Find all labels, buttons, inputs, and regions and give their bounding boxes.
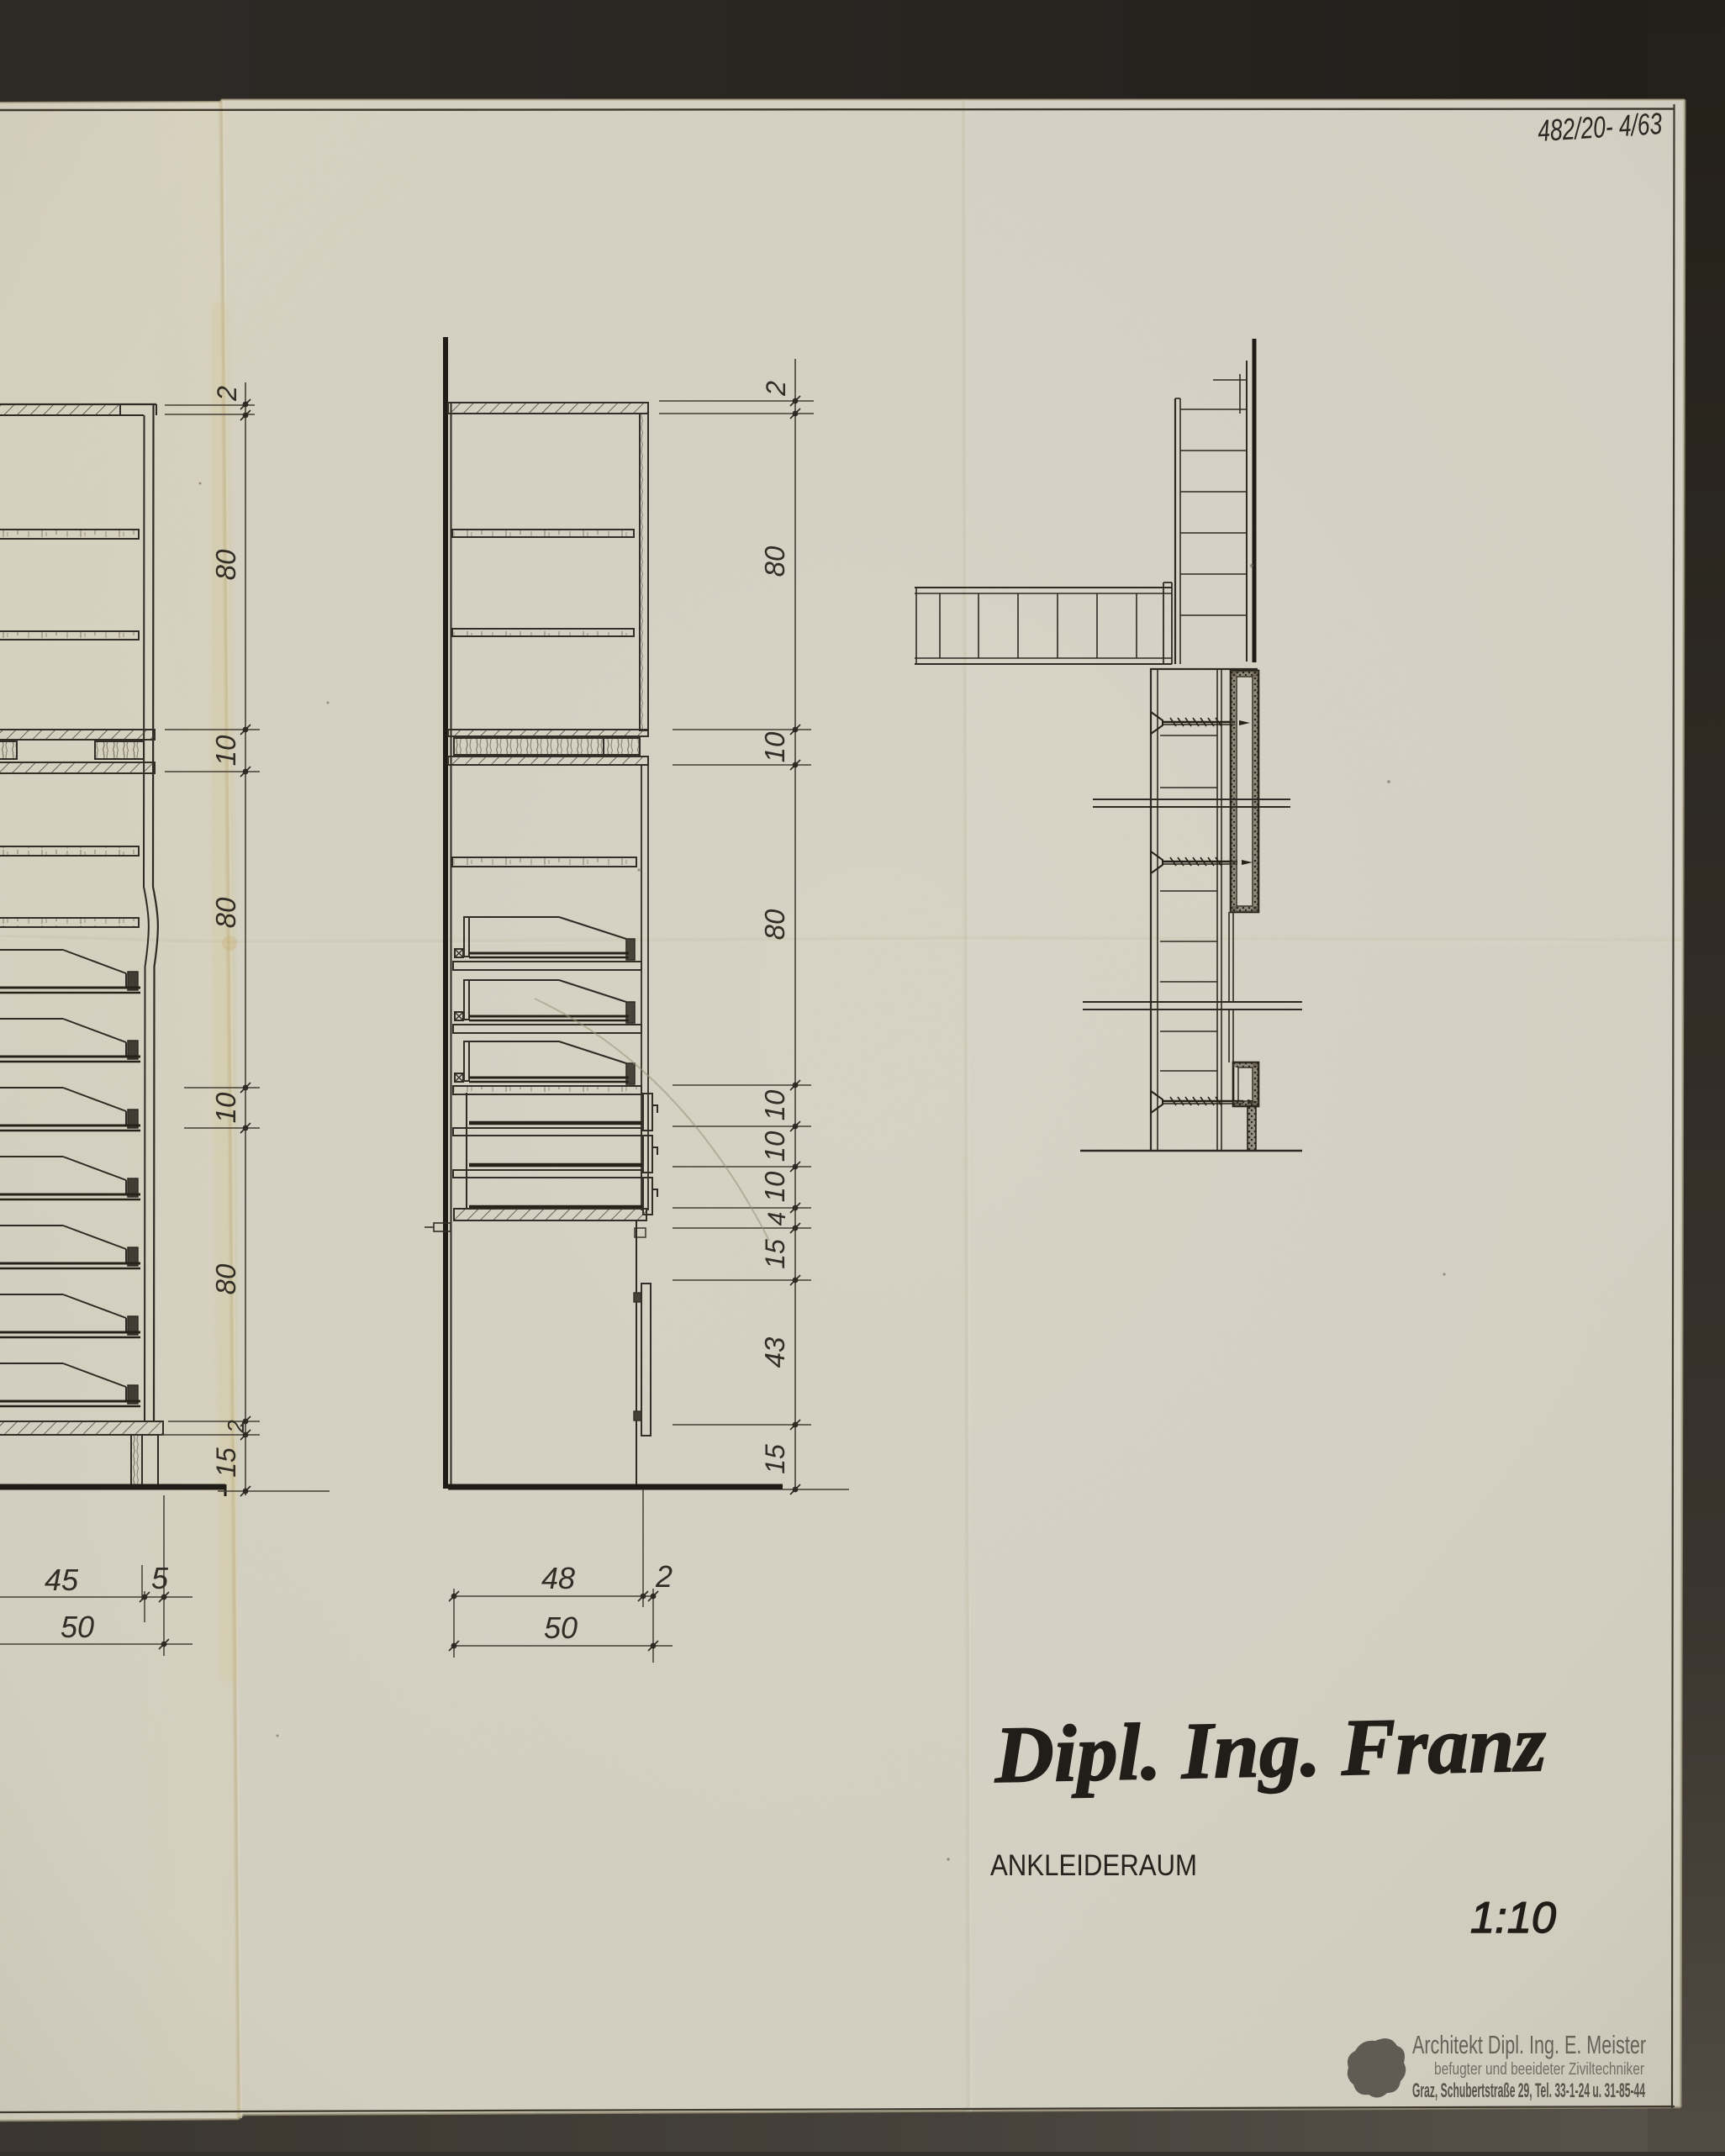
svg-text:80: 80 xyxy=(759,546,790,577)
svg-text:2: 2 xyxy=(761,381,791,397)
svg-text:befugter und beeideter Zivilte: befugter und beeideter Ziviltechniker xyxy=(1434,2060,1644,2079)
svg-text:80: 80 xyxy=(210,897,241,928)
svg-text:10: 10 xyxy=(210,1092,241,1123)
svg-text:80: 80 xyxy=(759,909,790,940)
svg-text:ANKLEIDERAUM: ANKLEIDERAUM xyxy=(990,1849,1197,1882)
svg-text:2: 2 xyxy=(212,386,242,402)
svg-text:5: 5 xyxy=(151,1561,169,1595)
svg-text:10: 10 xyxy=(759,1089,790,1120)
svg-text:Graz, Schubertstraße 29, Tel.: Graz, Schubertstraße 29, Tel. 33-1-24 u.… xyxy=(1412,2080,1645,2102)
svg-text:43: 43 xyxy=(759,1336,790,1368)
svg-text:10: 10 xyxy=(759,1131,790,1162)
svg-text:50: 50 xyxy=(544,1610,578,1645)
svg-text:10: 10 xyxy=(759,1171,790,1202)
svg-text:15: 15 xyxy=(211,1447,241,1478)
svg-text:2: 2 xyxy=(655,1559,673,1594)
svg-text:80: 80 xyxy=(210,1263,241,1294)
svg-text:45: 45 xyxy=(45,1563,79,1597)
svg-text:Architekt Dipl. Ing. E. Meiste: Architekt Dipl. Ing. E. Meister xyxy=(1412,2030,1646,2059)
svg-text:15: 15 xyxy=(760,1239,790,1269)
svg-text:48: 48 xyxy=(541,1561,575,1595)
svg-text:2: 2 xyxy=(223,1420,249,1434)
svg-text:15: 15 xyxy=(760,1444,790,1474)
svg-text:10: 10 xyxy=(210,735,241,766)
svg-text:50: 50 xyxy=(61,1610,94,1644)
svg-text:Dipl. Ing. Franz: Dipl. Ing. Franz xyxy=(993,1698,1547,1800)
svg-text:4: 4 xyxy=(763,1212,791,1226)
svg-text:1:10: 1:10 xyxy=(1470,1894,1556,1943)
svg-text:10: 10 xyxy=(759,731,790,762)
svg-text:80: 80 xyxy=(210,549,241,580)
